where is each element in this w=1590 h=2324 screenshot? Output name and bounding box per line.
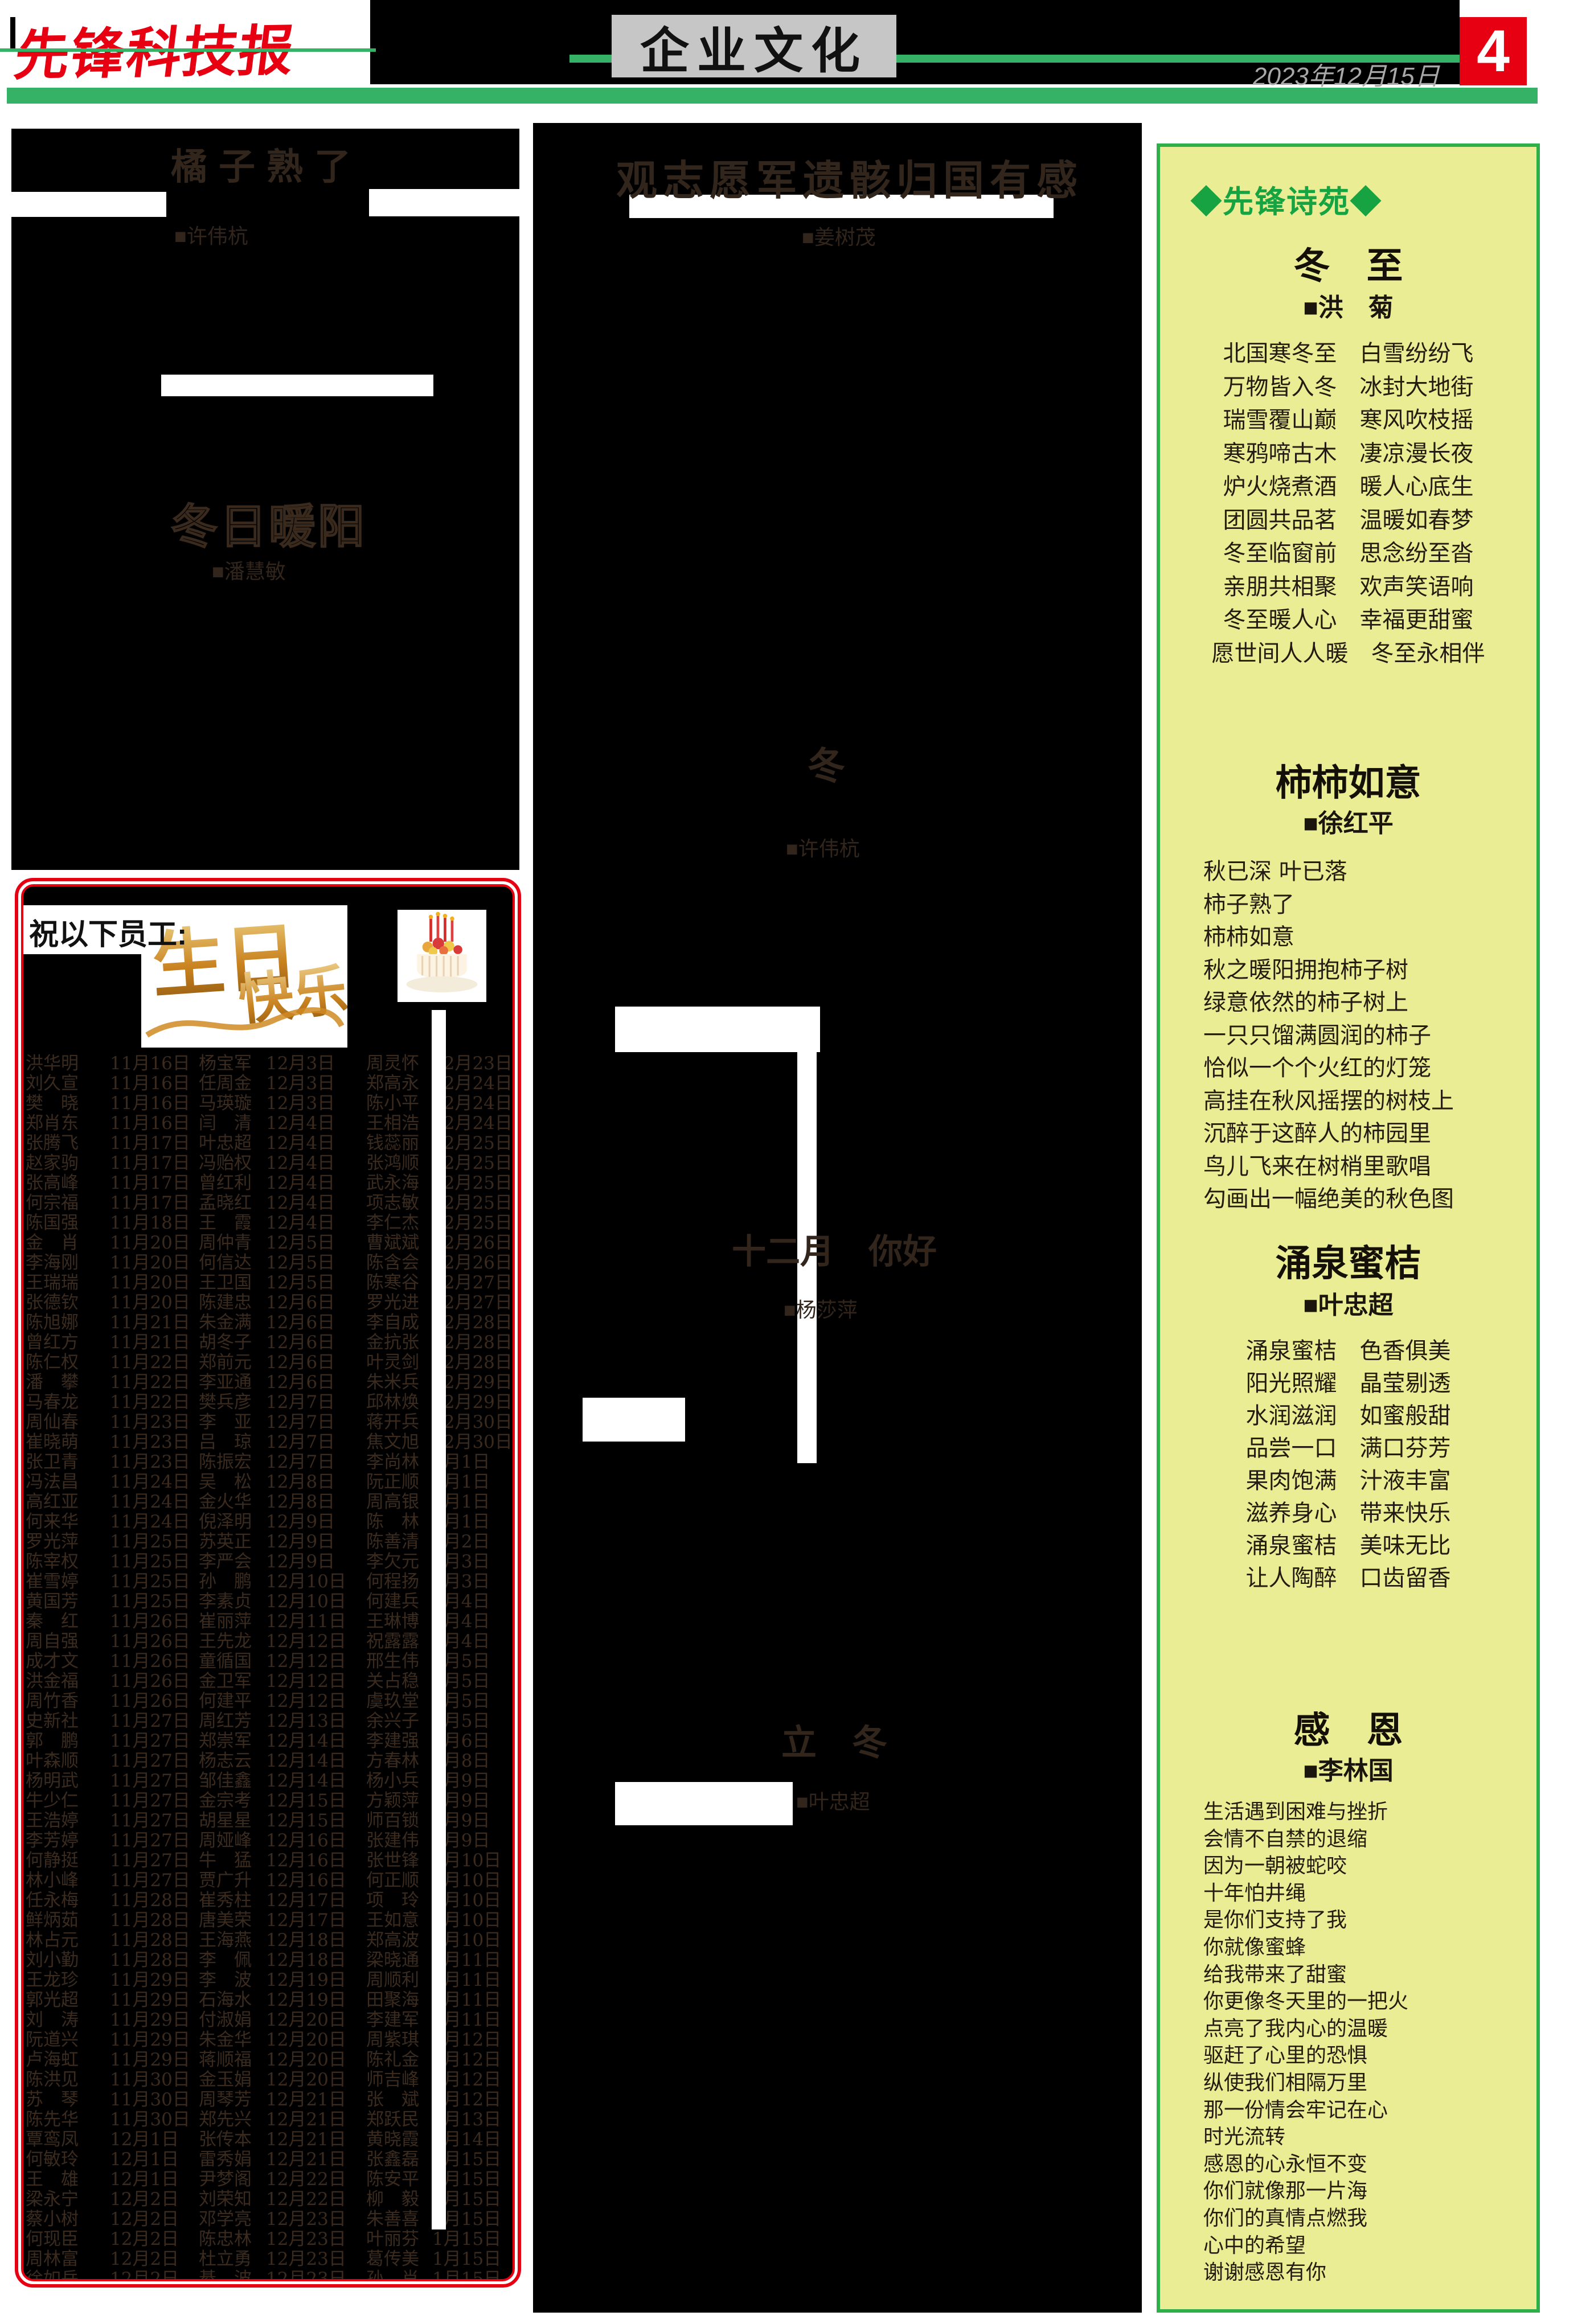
article-author-dongri: ■潘慧敏 bbox=[212, 555, 286, 585]
poem-line: 北国寒冬至 白雪纷纷飞 bbox=[1181, 335, 1516, 368]
cake-body bbox=[417, 954, 466, 979]
article-title-dong: 冬 bbox=[808, 736, 845, 790]
poem-line: 寒鸦啼古木 凄凉漫长夜 bbox=[1181, 435, 1516, 468]
poem-line: 果肉饱满 汁液丰富 bbox=[1181, 1462, 1516, 1495]
section-title-box: 企业文化 bbox=[612, 15, 896, 77]
poetry-panel-label: ◆先锋诗苑◆ bbox=[1191, 176, 1382, 221]
article-title-shieryue: 十二月 你好 bbox=[732, 1224, 937, 1274]
poem-line: 团圆共品茗 温暖如春梦 bbox=[1181, 502, 1516, 535]
logo-tick bbox=[10, 17, 15, 50]
white-gap-6 bbox=[583, 1398, 685, 1442]
poem-line: 感恩的心永恒不变 bbox=[1181, 2148, 1539, 2177]
poem-title-shishi: 柿柿如意 bbox=[1160, 754, 1536, 806]
poem-line: 秋已深 叶已落 bbox=[1181, 853, 1539, 886]
poetry-panel: ◆先锋诗苑◆ 冬 至 ■洪 菊 北国寒冬至 白雪纷纷飞万物皆入冬 冰封大地街瑞雪… bbox=[1157, 143, 1540, 2313]
poem-line: 十年怕井绳 bbox=[1181, 1877, 1539, 1906]
poem-line: 阳光照耀 晶莹剔透 bbox=[1181, 1365, 1516, 1398]
poem-line: 柿柿如意 bbox=[1181, 918, 1539, 951]
poem-title-dongzhi: 冬 至 bbox=[1160, 237, 1536, 289]
birthday-heading: 祝以下员工: bbox=[29, 910, 187, 953]
gold-swirl bbox=[141, 1001, 346, 1046]
poem-line: 涌泉蜜桔 色香俱美 bbox=[1181, 1332, 1516, 1365]
poem-line: 鸟儿飞来在树梢里歌唱 bbox=[1181, 1148, 1539, 1181]
poem-line: 水润滋润 如蜜般甜 bbox=[1181, 1397, 1516, 1430]
poem-line: 炉火烧煮酒 暖人心底生 bbox=[1181, 468, 1516, 501]
white-gap-7 bbox=[615, 1782, 793, 1825]
newspaper-page: 先锋科技报 企业文化 2023年12月15日 4 橘子熟了 ■许伟杭 冬日暖阳 … bbox=[0, 0, 1590, 2324]
section-title: 企业文化 bbox=[640, 11, 868, 82]
poem-line: 冬至暖人心 幸福更甜蜜 bbox=[1181, 601, 1516, 634]
poem-author-dongzhi: ■洪 菊 bbox=[1160, 287, 1536, 323]
employee-name: 孙 肖 bbox=[366, 2264, 419, 2281]
poem-line: 亲朋共相聚 欢声笑语响 bbox=[1181, 568, 1516, 601]
white-bar-over-list bbox=[432, 1010, 446, 2229]
poem-line: 驱赶了心里的恐惧 bbox=[1181, 2039, 1539, 2068]
poem-line: 点亮了我内心的温暖 bbox=[1181, 2012, 1539, 2042]
birthday-row: 徐如岳12月2日綦 波12月23日孙 肖1月15日 bbox=[23, 2264, 513, 2281]
white-gap-1 bbox=[11, 192, 166, 217]
issue-date: 2023年12月15日 bbox=[1253, 56, 1424, 92]
white-gap-3 bbox=[161, 375, 433, 396]
poem-line: 滋养身心 带来快乐 bbox=[1181, 1494, 1516, 1528]
poem-line: 涌泉蜜桔 美味无比 bbox=[1181, 1527, 1516, 1560]
poem-line: 你更像冬天里的一把火 bbox=[1181, 1985, 1539, 2014]
article-title-zhiyuanjun: 观志愿军遗骸归国有感 bbox=[616, 147, 1083, 207]
article-author-zhiyuanjun: ■姜树茂 bbox=[802, 221, 876, 251]
birthday-date: 12月23日 bbox=[266, 2264, 346, 2281]
white-gap-5 bbox=[615, 1007, 820, 1052]
birthday-cake-image bbox=[397, 910, 486, 1002]
poem-line: 那一份情会牢记在心 bbox=[1181, 2093, 1539, 2123]
poem-line: 万物皆入冬 冰封大地街 bbox=[1181, 368, 1516, 401]
poem-author-shishi: ■徐红平 bbox=[1160, 803, 1536, 839]
poem-line: 纵使我们相隔万里 bbox=[1181, 2066, 1539, 2096]
poem-line: 给我带来了甜蜜 bbox=[1181, 1958, 1539, 1988]
poem-line: 让人陶醉 口齿留香 bbox=[1181, 1559, 1516, 1592]
white-gap-2 bbox=[369, 189, 519, 216]
middle-article-block bbox=[533, 123, 1142, 2313]
poem-line: 秋之暖阳拥抱柿子树 bbox=[1181, 951, 1539, 984]
poem-line: 沉醉于这醉人的柿园里 bbox=[1181, 1115, 1539, 1148]
poem-line: 你们就像那一片海 bbox=[1181, 2174, 1539, 2204]
page-number: 4 bbox=[1477, 18, 1510, 85]
poem-line: 时光流转 bbox=[1181, 2120, 1539, 2150]
poem-line: 勾画出一幅绝美的秋色图 bbox=[1181, 1180, 1539, 1213]
poem-line: 心中的希望 bbox=[1181, 2229, 1539, 2259]
poem-line: 谢谢感恩有你 bbox=[1181, 2256, 1539, 2285]
poem-line: 愿世间人人暖 冬至永相伴 bbox=[1181, 635, 1516, 668]
cake-icon bbox=[397, 910, 486, 1002]
poem-line: 是你们支持了我 bbox=[1181, 1903, 1539, 1933]
article-title-juzi: 橘子熟了 bbox=[171, 138, 362, 190]
employee-name: 徐如岳 bbox=[26, 2264, 79, 2281]
cake-plate bbox=[407, 976, 478, 992]
birthday-date: 1月15日 bbox=[432, 2264, 501, 2281]
poem-title-ganen: 感 恩 bbox=[1160, 1701, 1536, 1754]
poem-line: 生活遇到困难与挫折 bbox=[1181, 1795, 1539, 1825]
poem-title-yongquan: 涌泉蜜桔 bbox=[1160, 1234, 1536, 1287]
article-title-lidong: 立 冬 bbox=[781, 1714, 887, 1765]
poem-line: 你就像蜜蜂 bbox=[1181, 1931, 1539, 1960]
masthead-logo: 先锋科技报 bbox=[11, 5, 380, 91]
birthday-box: 祝以下员工: 生日 快乐 bbox=[21, 884, 515, 2281]
page-number-box: 4 bbox=[1460, 17, 1527, 85]
poem-line: 会情不自禁的退缩 bbox=[1181, 1822, 1539, 1852]
birthday-date: 12月2日 bbox=[110, 2264, 179, 2281]
logo-underline bbox=[0, 48, 376, 52]
poem-line: 冬至临窗前 思念纷至沓 bbox=[1181, 535, 1516, 568]
poem-line: 柿子熟了 bbox=[1181, 886, 1539, 919]
poem-line: 高挂在秋风摇摆的树枝上 bbox=[1181, 1082, 1539, 1115]
article-author-juzi: ■许伟杭 bbox=[174, 220, 248, 249]
poem-author-ganen: ■李林国 bbox=[1160, 1750, 1536, 1787]
poem-line: 瑞雪覆山巅 寒风吹枝摇 bbox=[1181, 401, 1516, 434]
poem-line: 恰似一个个火红的灯笼 bbox=[1181, 1049, 1539, 1082]
employee-name: 綦 波 bbox=[199, 2264, 252, 2281]
poem-line: 一只只馏满圆润的柿子 bbox=[1181, 1017, 1539, 1050]
birthday-row: 周林富12月2日杜立勇12月23日葛传美1月15日 bbox=[23, 2244, 513, 2264]
poem-line: 因为一朝被蛇咬 bbox=[1181, 1849, 1539, 1879]
poem-author-yongquan: ■叶忠超 bbox=[1160, 1284, 1536, 1321]
cake-candles bbox=[429, 912, 454, 942]
article-title-dongri: 冬日暖阳 bbox=[171, 488, 367, 556]
article-author-dong: ■许伟杭 bbox=[786, 832, 860, 862]
article-author-lidong: ■叶忠超 bbox=[796, 1785, 870, 1815]
poem-line: 品尝一口 满口芬芳 bbox=[1181, 1430, 1516, 1463]
article-author-shieryue: ■杨莎萍 bbox=[784, 1294, 858, 1323]
cake-fruits bbox=[423, 938, 462, 956]
poem-line: 绿意依然的柿子树上 bbox=[1181, 984, 1539, 1017]
poem-line: 你们的真情点燃我 bbox=[1181, 2202, 1539, 2231]
